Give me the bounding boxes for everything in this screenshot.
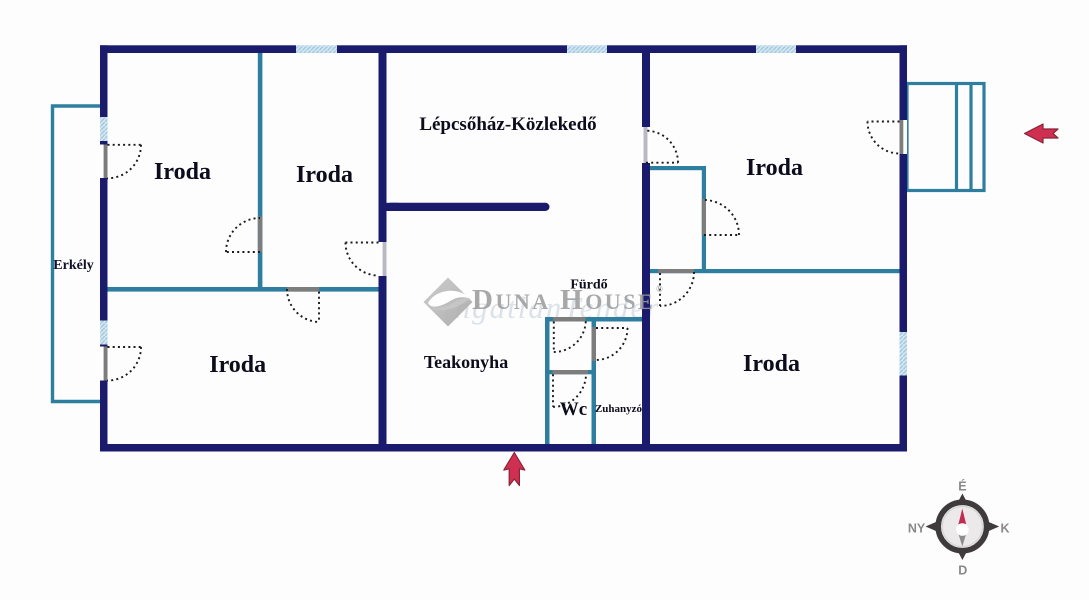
svg-text:Teakonyha: Teakonyha — [424, 352, 508, 372]
svg-text:É: É — [958, 479, 966, 494]
svg-text:Iroda: Iroda — [154, 159, 211, 185]
svg-text:K: K — [1000, 522, 1009, 536]
svg-text:Iroda: Iroda — [746, 155, 803, 181]
svg-text:Iroda: Iroda — [743, 351, 800, 377]
svg-text:Lépcsőház-Közlekedő: Lépcsőház-Közlekedő — [419, 114, 596, 135]
svg-text:Iroda: Iroda — [209, 352, 266, 378]
svg-text:®: ® — [656, 284, 663, 294]
svg-text:Zuhanyzó: Zuhanyzó — [595, 403, 643, 415]
svg-text:D: D — [958, 564, 967, 578]
svg-text:Erkély: Erkély — [53, 258, 93, 273]
svg-text:NY: NY — [908, 522, 926, 536]
svg-text:Wc: Wc — [560, 399, 587, 420]
svg-text:Iroda: Iroda — [296, 162, 353, 188]
svg-text:DUNAHOUSE: DUNAHOUSE — [472, 284, 655, 316]
